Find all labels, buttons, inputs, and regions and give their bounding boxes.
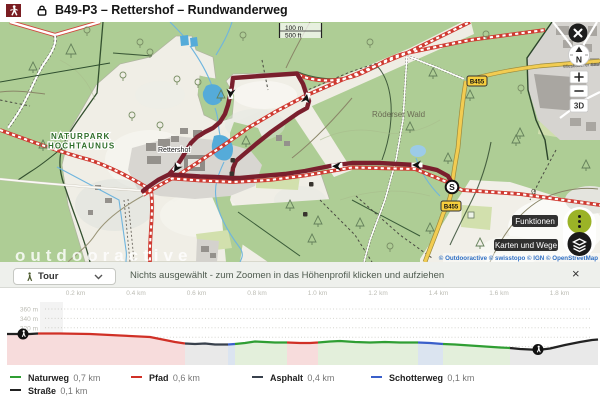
svg-text:100 m: 100 m [285,25,303,32]
svg-text:1.8 km: 1.8 km [550,290,570,297]
svg-text:Ω: Ω [531,189,536,196]
svg-text:S: S [449,182,455,192]
svg-text:B455: B455 [470,80,485,86]
svg-text:N: N [576,55,582,65]
svg-text:1.4 km: 1.4 km [429,290,449,297]
svg-text:0.6 km: 0.6 km [187,290,207,297]
svg-text:0.2 km: 0.2 km [66,290,86,297]
svg-text:outdooractive: outdooractive [15,246,192,262]
svg-text:360 m: 360 m [20,307,38,314]
svg-text:Röderser Wald: Röderser Wald [372,110,425,119]
svg-text:3D: 3D [574,102,584,111]
svg-text:0.8 km: 0.8 km [247,290,267,297]
svg-text:Funktionen: Funktionen [515,217,555,226]
svg-text:HOCHTAUNUS: HOCHTAUNUS [48,142,115,151]
svg-text:1.0 km: 1.0 km [308,290,328,297]
svg-text:500 ft: 500 ft [285,33,301,40]
svg-text:1.6 km: 1.6 km [489,290,509,297]
svg-text:1.2 km: 1.2 km [368,290,388,297]
svg-text:Rettershof: Rettershof [158,147,190,154]
svg-text:340 m: 340 m [20,316,38,323]
svg-text:0.4 km: 0.4 km [126,290,146,297]
svg-text:Karten und Wege: Karten und Wege [495,241,558,250]
svg-text:NATURPARK: NATURPARK [51,132,110,141]
svg-text:B455: B455 [444,205,459,211]
